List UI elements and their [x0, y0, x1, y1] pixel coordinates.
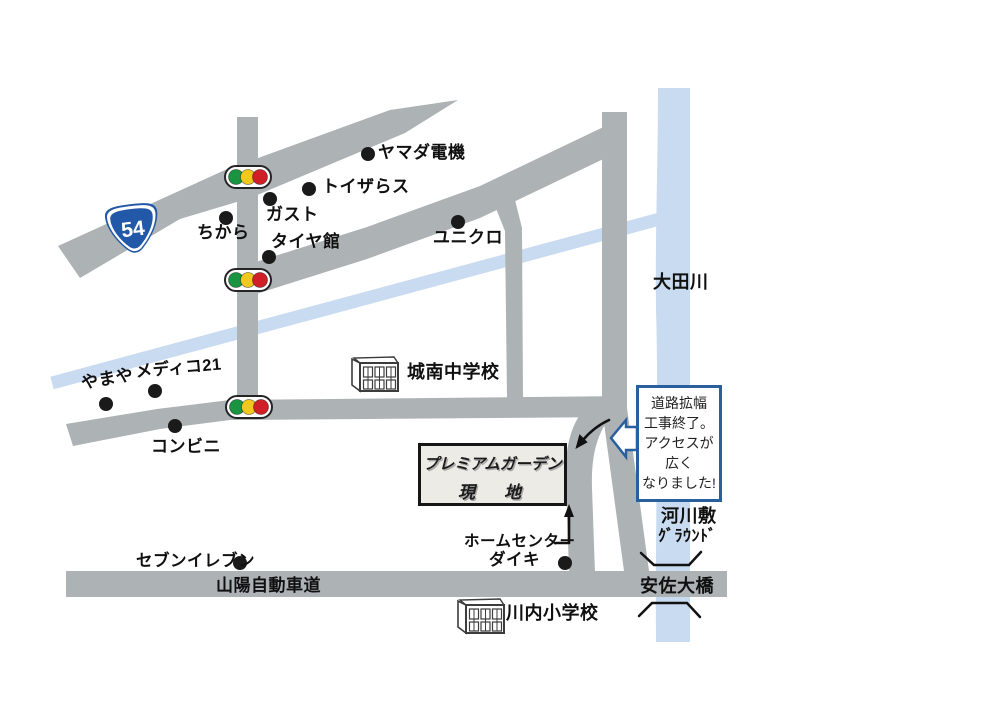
- label-seven-eleven: セブンイレブン: [136, 553, 255, 570]
- notice-line2: 工事終了。: [639, 413, 719, 433]
- ota-river: [656, 88, 690, 642]
- label-asa-ohashi-bridge: 安佐大橋: [640, 577, 714, 595]
- landmark-dot-icon: [168, 419, 182, 433]
- traffic-light-icon: [226, 396, 272, 418]
- label-uniqlo: ユニクロ: [433, 229, 503, 246]
- label-home-center: ホームセンター: [464, 534, 576, 550]
- label-daiki: ダイキ: [489, 552, 540, 569]
- traffic-light-icon: [225, 269, 271, 291]
- site-location-box: プレミアムガーデン 現 地: [418, 443, 567, 506]
- label-kawauchi-elementary: 川内小学校: [506, 604, 599, 622]
- label-riverbed-ground-1: 河川敷: [661, 507, 717, 525]
- landmark-dot-icon: [558, 556, 572, 570]
- label-taiyakan: タイヤ館: [271, 233, 341, 250]
- landmark-dot-icon: [262, 250, 276, 264]
- school-building-icon: [458, 599, 504, 633]
- label-toizarasu: トイザらス: [322, 178, 410, 195]
- site-box-line2: 現 地: [421, 478, 564, 503]
- label-chikara: ちから: [197, 224, 250, 241]
- landmark-dot-icon: [451, 215, 465, 229]
- label-sanyo-expressway: 山陽自動車道: [216, 577, 321, 594]
- route-54-number: 54: [120, 217, 146, 243]
- landmark-dot-icon: [99, 397, 113, 411]
- label-yamada-denki: ヤマダ電機: [378, 144, 466, 161]
- school-building-icon: [352, 357, 398, 391]
- access-map: 54 ヤマダ電機 トイザらス ガスト ちから タイヤ館 ユニクロ 大田川 城南中…: [0, 0, 1000, 707]
- label-riverbed-ground-2: ｸﾞﾗｳﾝﾄﾞ: [658, 529, 717, 545]
- landmark-dot-icon: [302, 182, 316, 196]
- notice-line4: 広く: [639, 453, 719, 473]
- label-gasuto: ガスト: [266, 206, 319, 223]
- traffic-light-icon: [225, 166, 271, 188]
- sanyo-expressway-road: [66, 571, 727, 597]
- notice-line3: アクセスが: [639, 433, 719, 453]
- label-konbini: コンビニ: [151, 438, 221, 455]
- landmark-dot-icon: [361, 147, 375, 161]
- label-jonan-junior-high: 城南中学校: [407, 363, 500, 381]
- landmark-dot-icon: [263, 192, 277, 206]
- site-box-line1: プレミアムガーデン: [421, 452, 564, 474]
- notice-line5: なりました!: [639, 473, 719, 493]
- road-widening-notice-bubble: 道路拡幅 工事終了。 アクセスが 広く なりました!: [636, 385, 722, 502]
- map-canvas: 54: [0, 0, 1000, 707]
- notice-line1: 道路拡幅: [639, 393, 719, 413]
- riverside-road: [602, 112, 627, 412]
- label-ota-river: 大田川: [653, 273, 709, 291]
- landmark-dot-icon: [148, 384, 162, 398]
